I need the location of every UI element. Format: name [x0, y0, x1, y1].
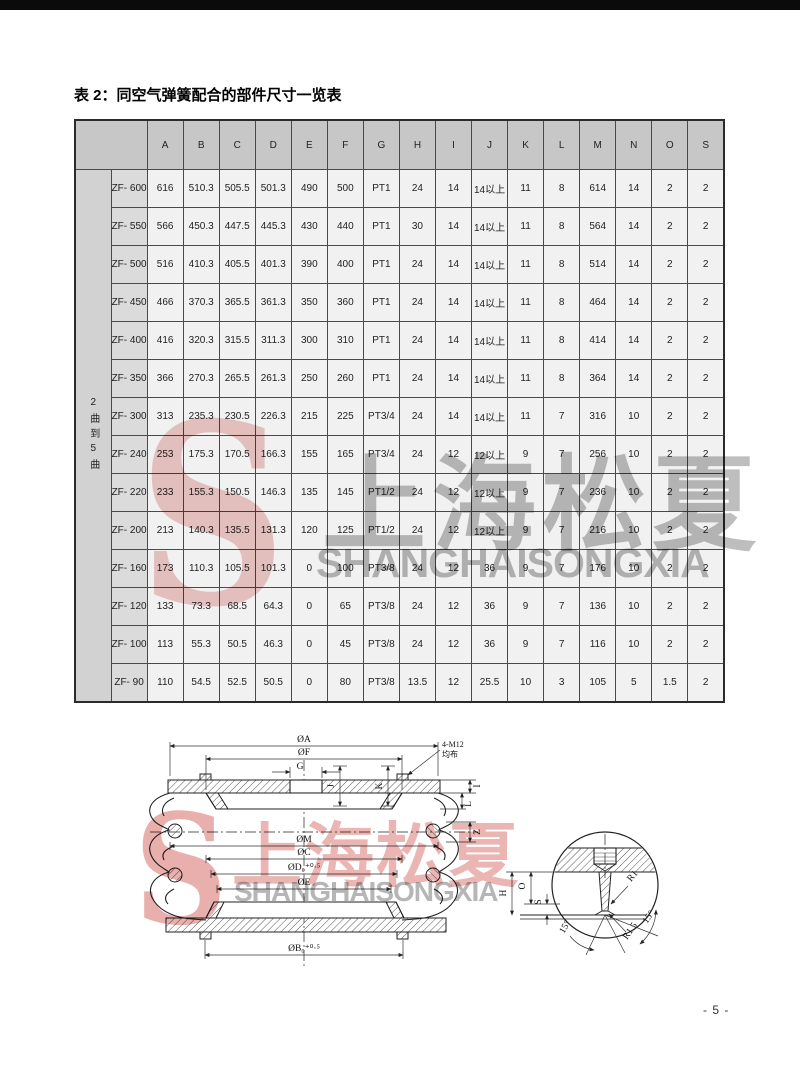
- value-cell: 501.3: [255, 170, 291, 208]
- column-header: F: [327, 120, 363, 170]
- value-cell: 310: [327, 322, 363, 360]
- value-cell: 2: [688, 588, 724, 626]
- value-cell: 614: [580, 170, 616, 208]
- value-cell: 360: [327, 284, 363, 322]
- value-cell: 226.3: [255, 398, 291, 436]
- value-cell: 2: [688, 246, 724, 284]
- value-cell: 135: [291, 474, 327, 512]
- column-header: D: [255, 120, 291, 170]
- model-cell: ZF- 160: [111, 550, 147, 588]
- value-cell: 24: [399, 550, 435, 588]
- value-cell: 24: [399, 322, 435, 360]
- value-cell: 253: [147, 436, 183, 474]
- value-cell: 24: [399, 474, 435, 512]
- value-cell: 2: [652, 512, 688, 550]
- column-header: N: [616, 120, 652, 170]
- model-cell: ZF- 200: [111, 512, 147, 550]
- value-cell: 110.3: [183, 550, 219, 588]
- value-cell: 7: [544, 550, 580, 588]
- value-cell: 14以上: [472, 208, 508, 246]
- value-cell: 9: [508, 550, 544, 588]
- value-cell: PT3/8: [363, 588, 399, 626]
- value-cell: 12: [435, 474, 471, 512]
- column-header: O: [652, 120, 688, 170]
- value-cell: 45: [327, 626, 363, 664]
- value-cell: 414: [580, 322, 616, 360]
- value-cell: 105.5: [219, 550, 255, 588]
- value-cell: 365.5: [219, 284, 255, 322]
- column-header: K: [508, 120, 544, 170]
- value-cell: 140.3: [183, 512, 219, 550]
- value-cell: 400: [327, 246, 363, 284]
- value-cell: 2: [688, 360, 724, 398]
- value-cell: 265.5: [219, 360, 255, 398]
- value-cell: 14以上: [472, 322, 508, 360]
- value-cell: 505.5: [219, 170, 255, 208]
- value-cell: 405.5: [219, 246, 255, 284]
- column-header: L: [544, 120, 580, 170]
- value-cell: 13.5: [399, 664, 435, 703]
- value-cell: 7: [544, 398, 580, 436]
- value-cell: 300: [291, 322, 327, 360]
- value-cell: 11: [508, 284, 544, 322]
- value-cell: 256: [580, 436, 616, 474]
- value-cell: 401.3: [255, 246, 291, 284]
- value-cell: 10: [616, 512, 652, 550]
- bolt-note-line2: 均布: [442, 749, 458, 759]
- value-cell: 10: [616, 398, 652, 436]
- value-cell: 155.3: [183, 474, 219, 512]
- catalog-page: 表 2：同空气弹簧配合的部件尺寸一览表 ABCDEFGHIJKLMNOS2曲到5…: [0, 0, 800, 1085]
- value-cell: 14: [616, 284, 652, 322]
- value-cell: 155: [291, 436, 327, 474]
- value-cell: 52.5: [219, 664, 255, 703]
- dim-label-i: I: [473, 784, 483, 787]
- air-spring-section-diagram: ØA ØF G 4-M12 均布 J K I L Z ØM ØC ØD₀: [140, 726, 488, 976]
- value-cell: 24: [399, 436, 435, 474]
- value-cell: 24: [399, 626, 435, 664]
- value-cell: 2: [688, 512, 724, 550]
- value-cell: 146.3: [255, 474, 291, 512]
- value-cell: PT3/8: [363, 550, 399, 588]
- page-number: - 5 -: [703, 1003, 729, 1017]
- column-header: E: [291, 120, 327, 170]
- value-cell: 364: [580, 360, 616, 398]
- value-cell: 170.5: [219, 436, 255, 474]
- value-cell: 514: [580, 246, 616, 284]
- value-cell: 8: [544, 284, 580, 322]
- value-cell: 315.5: [219, 322, 255, 360]
- value-cell: 215: [291, 398, 327, 436]
- value-cell: 50.5: [219, 626, 255, 664]
- value-cell: 30: [399, 208, 435, 246]
- value-cell: 24: [399, 398, 435, 436]
- value-cell: 235.3: [183, 398, 219, 436]
- model-cell: ZF- 400: [111, 322, 147, 360]
- value-cell: PT1: [363, 360, 399, 398]
- value-cell: PT1: [363, 322, 399, 360]
- value-cell: 2: [652, 474, 688, 512]
- value-cell: 8: [544, 170, 580, 208]
- value-cell: 2: [652, 246, 688, 284]
- value-cell: 7: [544, 588, 580, 626]
- value-cell: 10: [616, 588, 652, 626]
- value-cell: 7: [544, 512, 580, 550]
- value-cell: 9: [508, 436, 544, 474]
- value-cell: 466: [147, 284, 183, 322]
- value-cell: 100: [327, 550, 363, 588]
- value-cell: 2: [688, 436, 724, 474]
- model-cell: ZF- 300: [111, 398, 147, 436]
- value-cell: 24: [399, 284, 435, 322]
- value-cell: 46.3: [255, 626, 291, 664]
- value-cell: PT1: [363, 170, 399, 208]
- value-cell: 12: [435, 664, 471, 703]
- value-cell: 2: [652, 626, 688, 664]
- value-cell: 14以上: [472, 360, 508, 398]
- value-cell: PT3/8: [363, 626, 399, 664]
- value-cell: 125: [327, 512, 363, 550]
- value-cell: 7: [544, 626, 580, 664]
- value-cell: 0: [291, 664, 327, 703]
- value-cell: 14: [435, 360, 471, 398]
- value-cell: 2: [688, 170, 724, 208]
- value-cell: 14: [616, 208, 652, 246]
- value-cell: 135.5: [219, 512, 255, 550]
- value-cell: 14: [616, 360, 652, 398]
- value-cell: 14: [435, 284, 471, 322]
- value-cell: 24: [399, 360, 435, 398]
- value-cell: 14: [435, 208, 471, 246]
- value-cell: PT3/4: [363, 398, 399, 436]
- dim-label-d: ØD₀⁺⁰·⁵: [288, 862, 320, 873]
- value-cell: 11: [508, 360, 544, 398]
- value-cell: 250: [291, 360, 327, 398]
- value-cell: 10: [616, 550, 652, 588]
- value-cell: 131.3: [255, 512, 291, 550]
- value-cell: 150.5: [219, 474, 255, 512]
- corner-cell: [75, 120, 147, 170]
- model-cell: ZF- 600: [111, 170, 147, 208]
- value-cell: 8: [544, 246, 580, 284]
- model-cell: ZF- 220: [111, 474, 147, 512]
- value-cell: 50.5: [255, 664, 291, 703]
- value-cell: 24: [399, 588, 435, 626]
- value-cell: 236: [580, 474, 616, 512]
- value-cell: 11: [508, 398, 544, 436]
- value-cell: 105: [580, 664, 616, 703]
- value-cell: 11: [508, 208, 544, 246]
- model-cell: ZF- 90: [111, 664, 147, 703]
- value-cell: 311.3: [255, 322, 291, 360]
- value-cell: 361.3: [255, 284, 291, 322]
- value-cell: PT1/2: [363, 474, 399, 512]
- value-cell: 145: [327, 474, 363, 512]
- value-cell: 447.5: [219, 208, 255, 246]
- value-cell: 173: [147, 550, 183, 588]
- value-cell: PT1: [363, 208, 399, 246]
- value-cell: 616: [147, 170, 183, 208]
- value-cell: 36: [472, 588, 508, 626]
- value-cell: 370.3: [183, 284, 219, 322]
- dim-label-g: G: [297, 762, 304, 772]
- value-cell: 12: [435, 512, 471, 550]
- value-cell: 80: [327, 664, 363, 703]
- value-cell: 10: [508, 664, 544, 703]
- value-cell: 7: [544, 474, 580, 512]
- value-cell: 2: [688, 322, 724, 360]
- value-cell: 116: [580, 626, 616, 664]
- value-cell: 564: [580, 208, 616, 246]
- value-cell: 136: [580, 588, 616, 626]
- value-cell: 270.3: [183, 360, 219, 398]
- value-cell: 3: [544, 664, 580, 703]
- value-cell: 8: [544, 360, 580, 398]
- value-cell: 510.3: [183, 170, 219, 208]
- value-cell: 316: [580, 398, 616, 436]
- value-cell: 2: [652, 398, 688, 436]
- value-cell: 9: [508, 474, 544, 512]
- value-cell: 165: [327, 436, 363, 474]
- value-cell: 12: [435, 626, 471, 664]
- dim-label-k: K: [375, 782, 385, 789]
- value-cell: 2: [652, 588, 688, 626]
- value-cell: 233: [147, 474, 183, 512]
- value-cell: 11: [508, 322, 544, 360]
- value-cell: 14: [435, 398, 471, 436]
- value-cell: 464: [580, 284, 616, 322]
- value-cell: 2: [688, 284, 724, 322]
- value-cell: 0: [291, 550, 327, 588]
- column-header: C: [219, 120, 255, 170]
- value-cell: 410.3: [183, 246, 219, 284]
- value-cell: 14以上: [472, 170, 508, 208]
- value-cell: 14以上: [472, 246, 508, 284]
- value-cell: 500: [327, 170, 363, 208]
- value-cell: 260: [327, 360, 363, 398]
- value-cell: 390: [291, 246, 327, 284]
- value-cell: 14以上: [472, 398, 508, 436]
- parts-table: ABCDEFGHIJKLMNOS2曲到5曲ZF- 600616510.3505.…: [74, 119, 725, 703]
- value-cell: 101.3: [255, 550, 291, 588]
- column-header: H: [399, 120, 435, 170]
- value-cell: 2: [652, 550, 688, 588]
- value-cell: 14: [435, 246, 471, 284]
- column-header: J: [472, 120, 508, 170]
- dim-label-c: ØC: [297, 848, 310, 858]
- value-cell: 350: [291, 284, 327, 322]
- value-cell: 516: [147, 246, 183, 284]
- bead-detail-diagram: H O S R1 R1.5 15° 15°: [498, 818, 698, 963]
- value-cell: 320.3: [183, 322, 219, 360]
- dim-label-e: ØE: [298, 878, 311, 888]
- value-cell: 73.3: [183, 588, 219, 626]
- column-header: B: [183, 120, 219, 170]
- value-cell: PT1: [363, 284, 399, 322]
- value-cell: 65: [327, 588, 363, 626]
- value-cell: 2: [652, 322, 688, 360]
- row-group-label: 2曲到5曲: [75, 170, 111, 703]
- value-cell: 2: [688, 208, 724, 246]
- model-cell: ZF- 500: [111, 246, 147, 284]
- model-cell: ZF- 350: [111, 360, 147, 398]
- value-cell: 313: [147, 398, 183, 436]
- value-cell: 416: [147, 322, 183, 360]
- value-cell: 64.3: [255, 588, 291, 626]
- value-cell: 11: [508, 170, 544, 208]
- value-cell: 24: [399, 170, 435, 208]
- value-cell: 14: [435, 322, 471, 360]
- dim-label-h: H: [499, 889, 509, 896]
- value-cell: 2: [652, 360, 688, 398]
- value-cell: 8: [544, 322, 580, 360]
- dim-label-l: L: [464, 801, 474, 807]
- value-cell: 566: [147, 208, 183, 246]
- value-cell: 2: [688, 550, 724, 588]
- value-cell: 2: [688, 664, 724, 703]
- value-cell: 14以上: [472, 284, 508, 322]
- dim-label-f: ØF: [298, 748, 310, 758]
- value-cell: 2: [688, 398, 724, 436]
- value-cell: 10: [616, 626, 652, 664]
- column-header: G: [363, 120, 399, 170]
- value-cell: 166.3: [255, 436, 291, 474]
- value-cell: 1.5: [652, 664, 688, 703]
- value-cell: 0: [291, 588, 327, 626]
- value-cell: 10: [616, 436, 652, 474]
- value-cell: 0: [291, 626, 327, 664]
- value-cell: 113: [147, 626, 183, 664]
- value-cell: 490: [291, 170, 327, 208]
- model-cell: ZF- 450: [111, 284, 147, 322]
- value-cell: 2: [688, 626, 724, 664]
- value-cell: 213: [147, 512, 183, 550]
- model-cell: ZF- 240: [111, 436, 147, 474]
- value-cell: 9: [508, 588, 544, 626]
- value-cell: 2: [652, 436, 688, 474]
- value-cell: 54.5: [183, 664, 219, 703]
- value-cell: 430: [291, 208, 327, 246]
- value-cell: 68.5: [219, 588, 255, 626]
- value-cell: 8: [544, 208, 580, 246]
- value-cell: 2: [652, 284, 688, 322]
- value-cell: 9: [508, 512, 544, 550]
- model-cell: ZF- 550: [111, 208, 147, 246]
- value-cell: PT1/2: [363, 512, 399, 550]
- column-header: S: [688, 120, 724, 170]
- value-cell: 176: [580, 550, 616, 588]
- value-cell: 9: [508, 626, 544, 664]
- value-cell: 12: [435, 588, 471, 626]
- model-cell: ZF- 120: [111, 588, 147, 626]
- page-title: 表 2：同空气弹簧配合的部件尺寸一览表: [74, 84, 342, 105]
- value-cell: 14: [616, 170, 652, 208]
- value-cell: 2: [652, 208, 688, 246]
- value-cell: 14: [616, 246, 652, 284]
- value-cell: 10: [616, 474, 652, 512]
- model-cell: ZF- 100: [111, 626, 147, 664]
- dim-label-o: O: [518, 882, 528, 889]
- value-cell: 12以上: [472, 512, 508, 550]
- value-cell: 110: [147, 664, 183, 703]
- value-cell: 12: [435, 436, 471, 474]
- value-cell: 12以上: [472, 474, 508, 512]
- value-cell: 175.3: [183, 436, 219, 474]
- value-cell: 25.5: [472, 664, 508, 703]
- value-cell: 366: [147, 360, 183, 398]
- value-cell: 120: [291, 512, 327, 550]
- dim-label-s: S: [534, 899, 544, 904]
- bolt-note-line1: 4-M12: [442, 740, 464, 749]
- value-cell: 5: [616, 664, 652, 703]
- value-cell: 230.5: [219, 398, 255, 436]
- page-top-border: [0, 0, 800, 10]
- dim-label-z: Z: [473, 829, 483, 835]
- dim-label-b: ØB₀⁺⁰·⁵: [288, 943, 320, 954]
- column-header: M: [580, 120, 616, 170]
- value-cell: 225: [327, 398, 363, 436]
- value-cell: 450.3: [183, 208, 219, 246]
- value-cell: 11: [508, 246, 544, 284]
- value-cell: 7: [544, 436, 580, 474]
- value-cell: 445.3: [255, 208, 291, 246]
- value-cell: 36: [472, 626, 508, 664]
- value-cell: 440: [327, 208, 363, 246]
- dim-label-a: ØA: [297, 735, 311, 745]
- value-cell: PT3/8: [363, 664, 399, 703]
- dim-label-m: ØM: [296, 835, 312, 845]
- value-cell: 36: [472, 550, 508, 588]
- value-cell: 12: [435, 550, 471, 588]
- column-header: I: [435, 120, 471, 170]
- value-cell: 261.3: [255, 360, 291, 398]
- value-cell: 14: [616, 322, 652, 360]
- value-cell: 216: [580, 512, 616, 550]
- value-cell: 14: [435, 170, 471, 208]
- value-cell: 2: [652, 170, 688, 208]
- value-cell: 2: [688, 474, 724, 512]
- value-cell: 24: [399, 512, 435, 550]
- value-cell: 55.3: [183, 626, 219, 664]
- value-cell: PT3/4: [363, 436, 399, 474]
- value-cell: 24: [399, 246, 435, 284]
- value-cell: 12以上: [472, 436, 508, 474]
- dim-label-j: J: [327, 784, 337, 788]
- value-cell: 133: [147, 588, 183, 626]
- value-cell: PT1: [363, 246, 399, 284]
- column-header: A: [147, 120, 183, 170]
